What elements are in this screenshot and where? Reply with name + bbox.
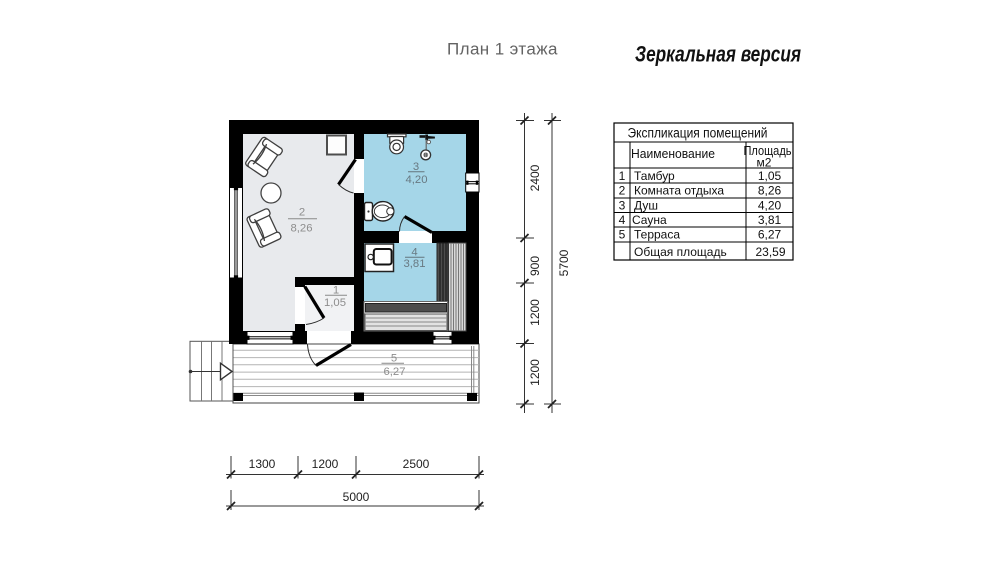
svg-text:1,05: 1,05 xyxy=(758,169,782,183)
svg-text:2: 2 xyxy=(619,184,626,198)
svg-text:Комната отдыха: Комната отдыха xyxy=(634,184,724,198)
svg-text:Терраса: Терраса xyxy=(634,228,680,242)
svg-text:3,81: 3,81 xyxy=(758,213,782,227)
svg-text:1300: 1300 xyxy=(249,457,276,471)
svg-text:900: 900 xyxy=(528,256,542,276)
svg-text:2: 2 xyxy=(299,207,305,219)
svg-text:4,20: 4,20 xyxy=(758,198,782,212)
svg-text:6,27: 6,27 xyxy=(758,228,782,242)
svg-text:Душ: Душ xyxy=(634,198,658,212)
svg-text:4: 4 xyxy=(619,213,626,227)
svg-text:2400: 2400 xyxy=(528,164,542,191)
svg-text:1,05: 1,05 xyxy=(324,297,346,309)
svg-text:Сауна: Сауна xyxy=(632,213,667,227)
svg-text:5: 5 xyxy=(619,228,626,242)
svg-text:8,26: 8,26 xyxy=(291,223,313,235)
svg-text:3: 3 xyxy=(619,198,626,212)
svg-text:Общая площадь: Общая площадь xyxy=(634,245,727,259)
svg-text:5700: 5700 xyxy=(557,249,571,276)
svg-text:4: 4 xyxy=(411,247,417,259)
svg-text:Зеркальная версия: Зеркальная версия xyxy=(635,42,801,67)
svg-text:1200: 1200 xyxy=(528,299,542,326)
svg-text:4,20: 4,20 xyxy=(406,174,428,186)
svg-text:2500: 2500 xyxy=(403,457,430,471)
svg-text:м2: м2 xyxy=(757,156,772,170)
svg-text:3,81: 3,81 xyxy=(404,258,426,270)
svg-text:8,26: 8,26 xyxy=(758,184,782,198)
svg-text:1200: 1200 xyxy=(312,457,339,471)
svg-text:1: 1 xyxy=(619,169,626,183)
svg-text:Экспликация помещений: Экспликация помещений xyxy=(628,126,768,141)
svg-text:Тамбур: Тамбур xyxy=(634,169,675,183)
svg-text:6,27: 6,27 xyxy=(384,366,406,378)
svg-text:5000: 5000 xyxy=(343,490,370,504)
svg-text:План 1 этажа: План 1 этажа xyxy=(447,40,558,59)
svg-text:23,59: 23,59 xyxy=(755,245,785,259)
svg-text:1200: 1200 xyxy=(528,359,542,386)
svg-text:Наименование: Наименование xyxy=(631,146,715,161)
